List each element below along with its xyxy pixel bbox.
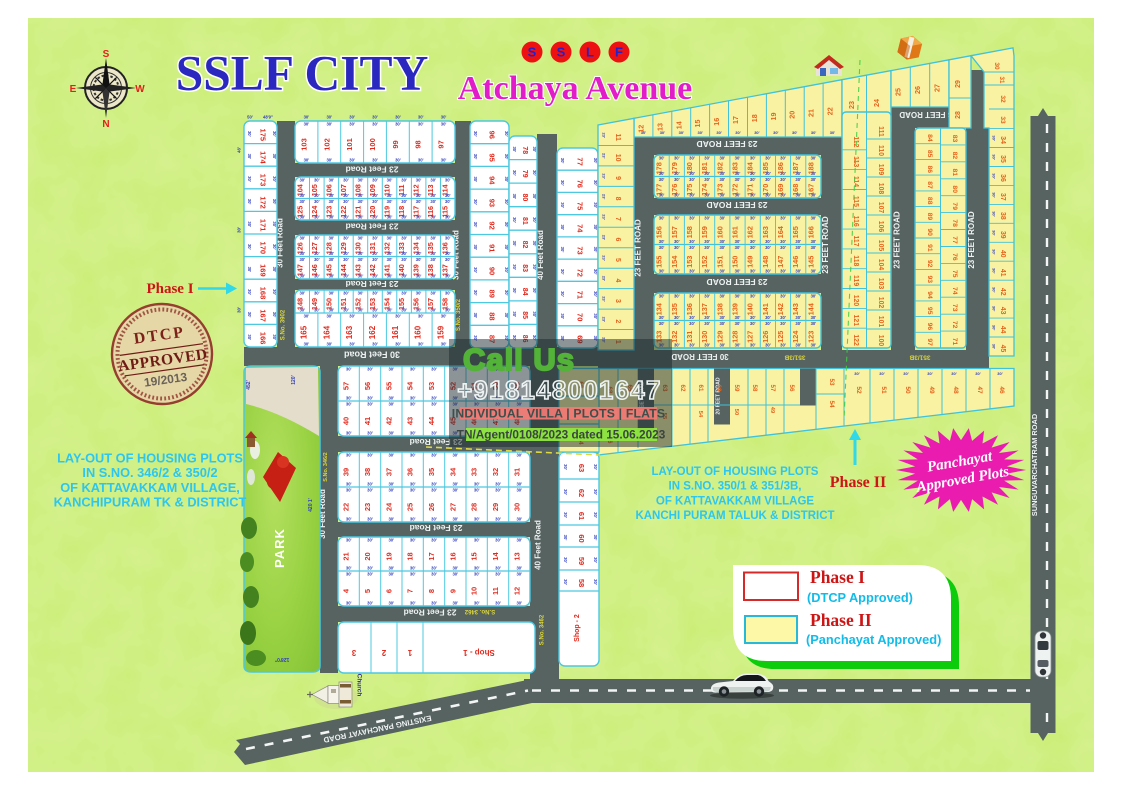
svg-text:76: 76 [951, 253, 958, 261]
svg-text:41: 41 [363, 417, 372, 425]
svg-text:Atchaya Avenue: Atchaya Avenue [458, 70, 693, 107]
svg-text:18: 18 [406, 552, 415, 560]
svg-text:30': 30' [659, 294, 665, 299]
svg-text:30': 30' [416, 257, 422, 262]
svg-text:30': 30' [811, 156, 817, 161]
svg-text:30': 30' [811, 321, 817, 326]
svg-text:25: 25 [894, 88, 903, 96]
svg-text:30': 30' [372, 291, 378, 296]
svg-text:7: 7 [406, 589, 415, 593]
svg-text:30': 30' [372, 251, 378, 256]
svg-text:100: 100 [368, 138, 377, 151]
svg-text:30': 30' [593, 202, 598, 208]
svg-text:30': 30' [659, 321, 665, 326]
svg-text:145: 145 [806, 256, 815, 268]
svg-text:37: 37 [999, 193, 1006, 201]
svg-text:N: N [102, 119, 109, 130]
svg-text:83: 83 [521, 264, 528, 272]
svg-text:30': 30' [504, 176, 509, 182]
svg-text:16: 16 [712, 118, 721, 126]
svg-text:30': 30' [735, 177, 741, 182]
svg-text:30': 30' [473, 131, 478, 137]
svg-text:33: 33 [999, 116, 1006, 124]
svg-text:30': 30' [735, 321, 741, 326]
svg-text:30': 30' [410, 517, 416, 522]
svg-text:30': 30' [780, 343, 786, 348]
svg-text:150: 150 [731, 256, 740, 268]
svg-text:61: 61 [697, 385, 704, 392]
svg-text:12: 12 [512, 587, 521, 595]
svg-text:30': 30' [674, 343, 680, 348]
svg-text:30': 30' [811, 171, 817, 176]
svg-text:30': 30' [495, 517, 501, 522]
svg-text:102: 102 [322, 138, 331, 151]
svg-text:30': 30' [410, 396, 416, 401]
svg-text:30': 30' [473, 267, 478, 273]
svg-text:30': 30' [474, 453, 480, 458]
svg-text:91: 91 [488, 244, 497, 252]
svg-text:30': 30' [792, 130, 797, 135]
svg-text:30': 30' [416, 178, 422, 183]
svg-text:30': 30' [704, 177, 710, 182]
svg-text:30': 30' [418, 158, 424, 163]
svg-text:30': 30' [795, 156, 801, 161]
svg-text:30': 30' [314, 199, 320, 204]
svg-text:30': 30' [560, 291, 565, 297]
svg-text:138: 138 [715, 303, 724, 315]
svg-text:30': 30' [343, 274, 349, 279]
svg-text:30': 30' [237, 307, 242, 313]
svg-text:23: 23 [847, 101, 856, 109]
svg-text:30': 30' [516, 488, 522, 493]
svg-text:76: 76 [576, 180, 585, 188]
svg-text:30': 30' [314, 274, 320, 279]
svg-text:137: 137 [700, 303, 709, 315]
svg-text:30': 30' [750, 245, 756, 250]
svg-text:30': 30' [473, 290, 478, 296]
svg-text:79: 79 [521, 170, 528, 178]
svg-text:30': 30' [445, 274, 451, 279]
svg-text:117: 117 [852, 235, 859, 246]
svg-text:41: 41 [999, 269, 1006, 277]
svg-text:31: 31 [998, 77, 1005, 84]
svg-text:30': 30' [765, 315, 771, 320]
svg-text:30': 30' [418, 314, 424, 319]
svg-text:94: 94 [488, 176, 497, 185]
svg-text:30': 30' [349, 122, 355, 127]
svg-text:30': 30' [272, 131, 277, 137]
svg-text:87: 87 [926, 181, 933, 189]
svg-text:57: 57 [342, 382, 351, 390]
svg-text:165: 165 [299, 325, 308, 339]
svg-text:30': 30' [593, 180, 598, 186]
svg-text:128: 128 [731, 331, 740, 343]
svg-text:E: E [70, 84, 77, 95]
svg-text:30': 30' [593, 247, 598, 253]
svg-text:36: 36 [406, 468, 415, 476]
svg-text:30': 30' [780, 156, 786, 161]
svg-text:30': 30' [304, 158, 310, 163]
svg-text:95: 95 [926, 307, 933, 315]
svg-text:35: 35 [427, 468, 436, 476]
svg-text:30': 30' [395, 342, 401, 347]
svg-text:30': 30' [504, 199, 509, 205]
svg-text:30': 30' [704, 216, 710, 221]
svg-text:30': 30' [358, 199, 364, 204]
svg-text:30': 30' [704, 171, 710, 176]
svg-text:30': 30' [452, 517, 458, 522]
svg-text:IN S.NO. 350/1 & 351/3B,: IN S.NO. 350/1 & 351/3B, [669, 481, 802, 493]
svg-text:30': 30' [773, 130, 778, 135]
svg-text:30': 30' [735, 239, 741, 244]
svg-text:50: 50 [904, 386, 911, 394]
svg-text:30': 30' [431, 402, 437, 407]
svg-text:30': 30' [512, 146, 517, 152]
svg-text:30': 30' [795, 245, 801, 250]
svg-text:30': 30' [473, 313, 478, 319]
svg-text:53: 53 [427, 382, 436, 390]
svg-text:30': 30' [750, 193, 756, 198]
svg-text:30': 30' [750, 294, 756, 299]
svg-text:30': 30' [430, 199, 436, 204]
svg-text:20: 20 [788, 111, 797, 119]
svg-text:30': 30' [388, 601, 394, 606]
svg-text:30': 30' [765, 156, 771, 161]
svg-text:INDIVIDUAL VILLA | PLOTS | FLA: INDIVIDUAL VILLA | PLOTS | FLATS [452, 406, 665, 420]
svg-text:30': 30' [445, 199, 451, 204]
svg-text:158: 158 [685, 226, 694, 238]
svg-text:30': 30' [719, 171, 725, 176]
svg-text:30': 30' [674, 177, 680, 182]
svg-text:30': 30' [395, 115, 401, 120]
svg-text:S: S [103, 49, 110, 60]
svg-text:30': 30' [387, 199, 393, 204]
svg-text:23 FEET ROAD: 23 FEET ROAD [697, 139, 758, 149]
svg-text:30': 30' [299, 251, 305, 256]
svg-text:30': 30' [441, 122, 447, 127]
svg-text:SSLF CITY: SSLF CITY [176, 46, 429, 101]
svg-text:30': 30' [346, 453, 352, 458]
svg-text:30': 30' [367, 431, 373, 436]
svg-text:30': 30' [387, 251, 393, 256]
svg-text:30': 30' [299, 215, 305, 220]
svg-text:30': 30' [473, 176, 478, 182]
svg-text:30': 30' [367, 453, 373, 458]
svg-text:32: 32 [999, 95, 1006, 103]
svg-text:30': 30' [401, 274, 407, 279]
svg-text:140: 140 [746, 303, 755, 315]
svg-text:30': 30' [704, 269, 710, 274]
svg-text:28: 28 [470, 503, 479, 511]
svg-text:30': 30' [563, 489, 568, 495]
svg-text:30': 30' [975, 371, 980, 376]
svg-text:S: S [528, 45, 537, 60]
svg-text:30': 30' [358, 291, 364, 296]
svg-text:SUNGUVARCHATRAM ROAD: SUNGUVARCHATRAM ROAD [1030, 413, 1039, 516]
svg-text:34: 34 [999, 136, 1006, 144]
svg-text:30': 30' [452, 453, 458, 458]
svg-text:30': 30' [247, 334, 252, 340]
svg-text:92: 92 [926, 260, 933, 268]
svg-text:30': 30' [593, 269, 598, 275]
svg-text:30': 30' [247, 289, 252, 295]
svg-text:30': 30' [689, 177, 695, 182]
svg-text:30': 30' [473, 244, 478, 250]
svg-text:30': 30' [445, 291, 451, 296]
svg-text:14: 14 [491, 552, 500, 561]
svg-text:58: 58 [577, 579, 586, 587]
svg-text:S.No. 350/2: S.No. 350/2 [456, 298, 462, 331]
svg-text:159: 159 [437, 325, 446, 339]
svg-text:30': 30' [445, 257, 451, 262]
svg-text:165: 165 [791, 226, 800, 238]
svg-text:80: 80 [521, 194, 528, 202]
svg-text:30': 30' [343, 257, 349, 262]
svg-text:30': 30' [401, 308, 407, 313]
svg-text:30': 30' [401, 193, 407, 198]
svg-text:23': 23' [602, 153, 607, 158]
svg-text:62: 62 [577, 489, 586, 497]
svg-text:30': 30' [346, 601, 352, 606]
svg-text:30': 30' [750, 177, 756, 182]
svg-text:30': 30' [504, 267, 509, 273]
svg-text:30': 30' [716, 130, 721, 135]
svg-text:79: 79 [951, 202, 958, 210]
svg-text:75: 75 [951, 270, 958, 278]
svg-text:30': 30' [388, 367, 394, 372]
svg-text:30': 30' [314, 236, 320, 241]
svg-text:72: 72 [951, 321, 958, 329]
svg-text:30': 30' [992, 306, 997, 311]
svg-text:153: 153 [685, 256, 694, 268]
svg-text:30': 30' [735, 294, 741, 299]
svg-text:30': 30' [358, 215, 364, 220]
svg-text:3: 3 [614, 299, 621, 303]
svg-text:30': 30' [387, 236, 393, 241]
svg-text:30': 30' [474, 566, 480, 571]
svg-text:17: 17 [427, 552, 436, 560]
svg-text:30': 30' [811, 216, 817, 221]
svg-text:20 FEET ROAD: 20 FEET ROAD [716, 377, 722, 414]
svg-text:30': 30' [388, 566, 394, 571]
svg-text:30': 30' [735, 193, 741, 198]
svg-text:11: 11 [491, 587, 500, 595]
svg-text:30': 30' [689, 156, 695, 161]
svg-text:S.No. 3462: S.No. 3462 [540, 614, 546, 645]
svg-text:30': 30' [247, 176, 252, 182]
svg-text:46': 46' [237, 147, 242, 153]
svg-text:351/3B: 351/3B [909, 354, 930, 361]
svg-text:5: 5 [363, 589, 372, 593]
svg-text:30': 30' [719, 193, 725, 198]
svg-text:6: 6 [614, 238, 621, 242]
svg-text:30': 30' [326, 122, 332, 127]
svg-text:30': 30' [358, 251, 364, 256]
svg-text:30': 30' [504, 244, 509, 250]
svg-text:Shop - 2: Shop - 2 [574, 614, 581, 642]
svg-text:151: 151 [715, 256, 724, 268]
svg-text:30': 30' [387, 193, 393, 198]
svg-text:30': 30' [512, 288, 517, 294]
svg-text:30': 30' [430, 291, 436, 296]
svg-text:30': 30' [674, 216, 680, 221]
svg-text:S: S [557, 45, 566, 60]
svg-text:30': 30' [416, 199, 422, 204]
svg-text:9: 9 [448, 589, 457, 593]
svg-text:30': 30' [512, 311, 517, 317]
svg-text:124: 124 [791, 330, 800, 343]
svg-text:30': 30' [410, 482, 416, 487]
svg-text:96: 96 [926, 323, 933, 331]
svg-text:23 FEET ROAD: 23 FEET ROAD [707, 277, 768, 287]
svg-text:30': 30' [719, 321, 725, 326]
svg-text:30': 30' [473, 154, 478, 160]
svg-text:106: 106 [877, 221, 884, 233]
svg-text:30': 30' [811, 269, 817, 274]
svg-text:30': 30' [474, 601, 480, 606]
svg-text:30': 30' [430, 215, 436, 220]
svg-text:30': 30' [343, 215, 349, 220]
svg-text:30': 30' [473, 222, 478, 228]
svg-text:30': 30' [765, 177, 771, 182]
svg-text:30': 30' [795, 216, 801, 221]
svg-text:30': 30' [272, 154, 277, 160]
svg-text:30': 30' [532, 288, 537, 294]
svg-text:30': 30' [452, 566, 458, 571]
svg-text:30': 30' [387, 257, 393, 262]
svg-text:23': 23' [602, 214, 607, 219]
svg-text:3: 3 [351, 648, 356, 657]
svg-text:30': 30' [780, 245, 786, 250]
svg-text:30': 30' [516, 566, 522, 571]
svg-text:30': 30' [372, 236, 378, 241]
svg-text:OF KATTAVAKKAM VILLAGE: OF KATTAVAKKAM VILLAGE [656, 495, 815, 507]
svg-text:157: 157 [670, 226, 679, 238]
svg-text:30': 30' [593, 224, 598, 230]
svg-text:123: 123 [806, 331, 815, 343]
svg-text:351/3B: 351/3B [784, 354, 805, 361]
svg-text:30': 30' [395, 314, 401, 319]
svg-text:30': 30' [343, 251, 349, 256]
svg-text:22: 22 [342, 503, 351, 511]
svg-text:30': 30' [445, 193, 451, 198]
svg-text:30': 30' [563, 579, 568, 585]
svg-text:30': 30' [431, 488, 437, 493]
svg-text:22: 22 [826, 107, 835, 115]
svg-text:30': 30' [299, 274, 305, 279]
svg-text:30': 30' [765, 193, 771, 198]
svg-text:111: 111 [877, 126, 884, 137]
svg-text:82: 82 [521, 241, 528, 249]
svg-text:23': 23' [602, 296, 607, 301]
svg-text:169: 169 [259, 264, 268, 277]
svg-text:30': 30' [674, 321, 680, 326]
svg-text:30': 30' [329, 274, 335, 279]
svg-text:30': 30' [329, 193, 335, 198]
svg-text:63: 63 [577, 464, 586, 472]
svg-text:30': 30' [416, 215, 422, 220]
svg-text:56: 56 [788, 385, 795, 392]
svg-text:30': 30' [372, 158, 378, 163]
svg-text:30': 30' [674, 156, 680, 161]
svg-text:30': 30' [272, 199, 277, 205]
svg-text:30': 30' [445, 251, 451, 256]
svg-text:30': 30' [719, 294, 725, 299]
svg-text:30': 30' [326, 314, 332, 319]
svg-text:78: 78 [521, 146, 528, 154]
svg-text:30': 30' [401, 257, 407, 262]
svg-text:52: 52 [855, 386, 862, 394]
svg-text:30': 30' [927, 371, 932, 376]
svg-text:51: 51 [880, 386, 887, 394]
svg-text:30': 30' [719, 343, 725, 348]
svg-text:30': 30' [452, 482, 458, 487]
svg-text:23 FEET ROAD: 23 FEET ROAD [707, 200, 768, 210]
svg-text:30': 30' [416, 236, 422, 241]
svg-text:19: 19 [384, 552, 393, 560]
svg-text:30': 30' [358, 257, 364, 262]
svg-text:30': 30' [780, 239, 786, 244]
svg-text:4: 4 [614, 278, 621, 282]
svg-text:30': 30' [674, 269, 680, 274]
svg-text:30': 30' [795, 193, 801, 198]
svg-text:24: 24 [384, 502, 393, 511]
svg-text:26: 26 [427, 503, 436, 511]
svg-text:14: 14 [674, 121, 683, 129]
svg-text:30': 30' [372, 308, 378, 313]
svg-text:118: 118 [852, 255, 859, 266]
svg-text:30': 30' [765, 171, 771, 176]
svg-text:30': 30' [388, 431, 394, 436]
svg-text:30': 30' [674, 171, 680, 176]
svg-text:30': 30' [750, 269, 756, 274]
svg-text:30': 30' [532, 170, 537, 176]
svg-text:30': 30' [388, 538, 394, 543]
svg-text:23 Feet Road: 23 Feet Road [404, 608, 457, 618]
svg-text:30': 30' [372, 115, 378, 120]
svg-text:114: 114 [852, 176, 859, 187]
svg-text:30': 30' [372, 215, 378, 220]
svg-text:30': 30' [659, 239, 665, 244]
svg-text:30': 30' [811, 315, 817, 320]
svg-text:100: 100 [877, 335, 884, 347]
svg-text:49: 49 [928, 386, 935, 394]
svg-text:30': 30' [903, 371, 908, 376]
svg-text:30': 30' [272, 244, 277, 250]
svg-text:30': 30' [299, 308, 305, 313]
svg-text:24: 24 [872, 99, 881, 107]
svg-text:42: 42 [384, 417, 393, 425]
svg-text:30': 30' [512, 217, 517, 223]
svg-text:83: 83 [951, 135, 958, 143]
svg-text:30': 30' [272, 334, 277, 340]
svg-text:30': 30' [495, 572, 501, 577]
svg-text:77: 77 [951, 236, 958, 244]
svg-text:30': 30' [704, 321, 710, 326]
svg-text:30': 30' [659, 177, 665, 182]
svg-text:30: 30 [993, 62, 1000, 70]
svg-text:30': 30' [452, 572, 458, 577]
svg-text:30': 30' [395, 122, 401, 127]
svg-text:IN S.NO. 346/2 & 350/2: IN S.NO. 346/2 & 350/2 [82, 465, 217, 480]
svg-text:96: 96 [488, 131, 497, 139]
svg-text:164: 164 [322, 325, 331, 339]
svg-text:126: 126 [761, 331, 770, 343]
svg-text:30': 30' [504, 290, 509, 296]
svg-text:30': 30' [346, 396, 352, 401]
svg-text:13: 13 [512, 552, 521, 560]
svg-text:30': 30' [372, 178, 378, 183]
